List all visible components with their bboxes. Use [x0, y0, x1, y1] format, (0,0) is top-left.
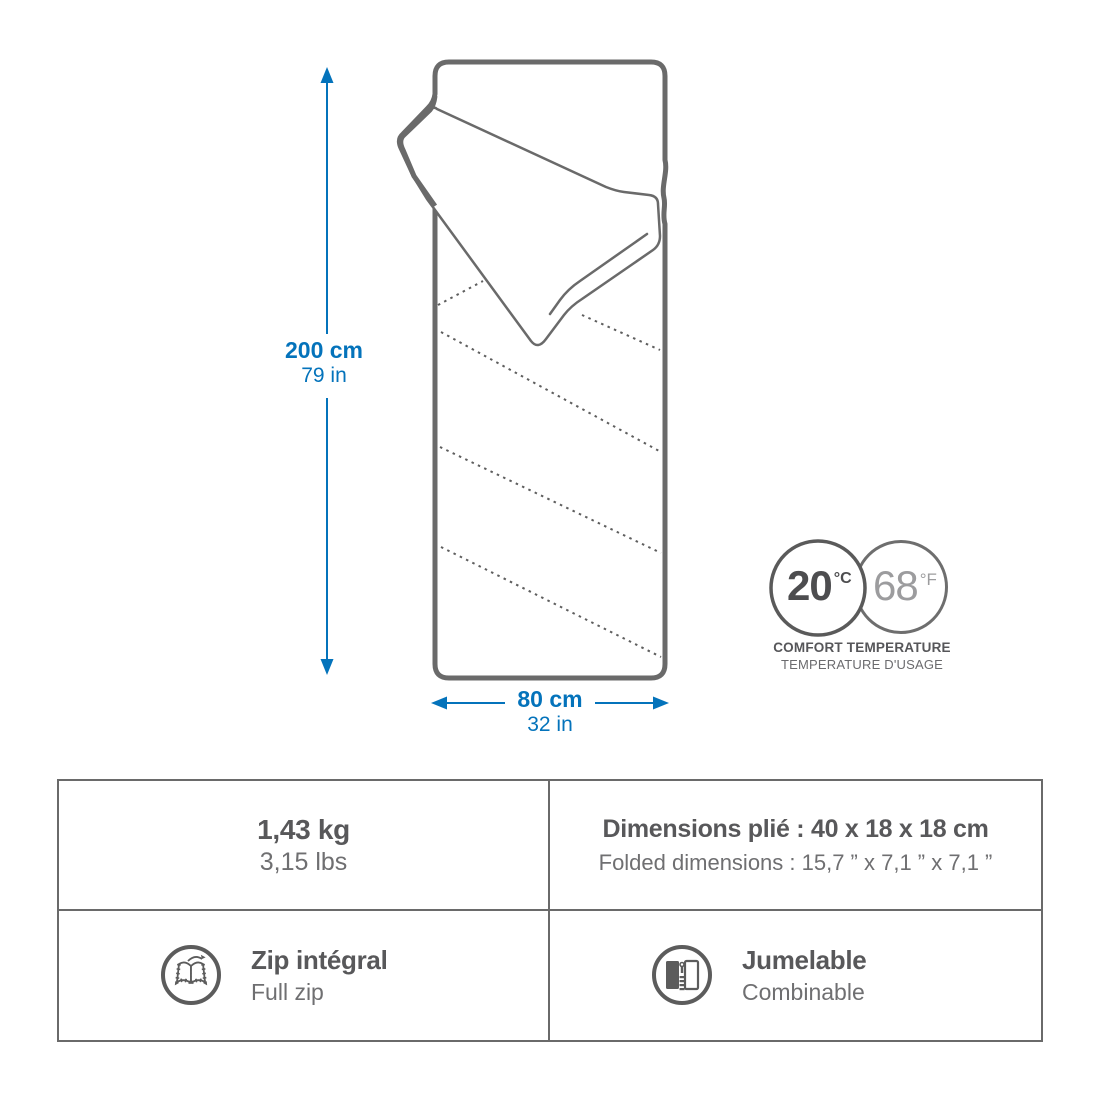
combinable-fr: Jumelable: [742, 943, 866, 977]
arrowhead-right: [653, 697, 669, 710]
comfort-temp-label-fr: TEMPERATURE D'USAGE: [712, 657, 1012, 672]
open-sleeping-bag-icon: [159, 943, 223, 1007]
height-metric-value: 200 cm: [250, 337, 398, 363]
width-dimension-label: 80 cm 32 in: [476, 686, 624, 738]
sleeping-bag-illustration: [399, 62, 665, 678]
weight-cell: 1,43 kg 3,15 lbs: [59, 781, 550, 911]
folded-dimensions-en: Folded dimensions : 15,7 ” x 7,1 ” x 7,1…: [599, 847, 993, 878]
celsius-reading: 20 °C: [787, 564, 852, 608]
height-imperial-value: 79 in: [250, 363, 398, 389]
combinable-en: Combinable: [742, 977, 866, 1007]
celsius-value: 20: [787, 564, 832, 608]
full-zip-cell: Zip intégral Full zip: [59, 911, 550, 1041]
width-imperial-value: 32 in: [476, 712, 624, 738]
spec-table: 1,43 kg 3,15 lbs Dimensions plié : 40 x …: [57, 779, 1043, 1042]
weight-metric: 1,43 kg: [257, 812, 350, 847]
combinable-cell: Jumelable Combinable: [550, 911, 1041, 1041]
full-zip-en: Full zip: [251, 977, 388, 1007]
combinable-text: Jumelable Combinable: [742, 943, 866, 1007]
celsius-unit: °C: [834, 570, 852, 588]
height-dimension-label: 200 cm 79 in: [250, 337, 398, 389]
arrowhead-left: [431, 697, 447, 710]
fahrenheit-unit: °F: [920, 570, 937, 590]
weight-imperial: 3,15 lbs: [260, 847, 348, 878]
fahrenheit-reading: 68 °F: [873, 564, 937, 608]
fahrenheit-value: 68: [873, 564, 918, 608]
comfort-temp-label-en: COMFORT TEMPERATURE: [712, 640, 1012, 655]
full-zip-text: Zip intégral Full zip: [251, 943, 388, 1007]
full-zip-fr: Zip intégral: [251, 943, 388, 977]
folded-dimensions-fr: Dimensions plié : 40 x 18 x 18 cm: [602, 812, 988, 847]
product-infographic: 200 cm 79 in 80 cm 32 in 20 °C 68 °F COM…: [0, 0, 1100, 1100]
folded-dimensions-cell: Dimensions plié : 40 x 18 x 18 cm Folded…: [550, 781, 1041, 911]
arrowhead-down: [321, 659, 334, 675]
width-metric-value: 80 cm: [476, 686, 624, 712]
zipper-join-icon: [650, 943, 714, 1007]
arrowhead-up: [321, 67, 334, 83]
